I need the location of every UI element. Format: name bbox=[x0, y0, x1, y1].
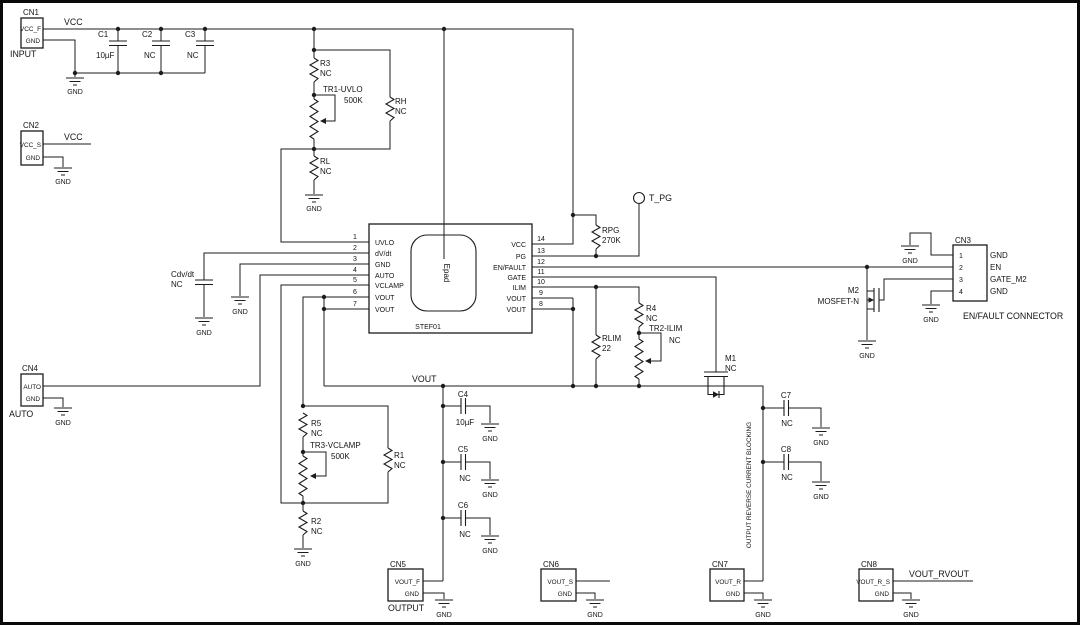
tr1-wiper bbox=[314, 95, 335, 121]
pg-wire bbox=[532, 204, 639, 257]
tr1-ref: TR1-UVLO bbox=[323, 85, 363, 94]
gnd-label: GND bbox=[196, 330, 212, 337]
cdvdt-ref: Cdv/dt bbox=[171, 270, 195, 279]
cn6-name: CN6 bbox=[543, 560, 560, 569]
trimmer-tr2 bbox=[635, 339, 643, 379]
pin7-wire bbox=[324, 297, 369, 386]
cn4-name: CN4 bbox=[22, 364, 39, 373]
resistor-r3 bbox=[310, 58, 318, 82]
ic-pin-number: 6 bbox=[353, 289, 357, 296]
mosfet-m1 bbox=[704, 372, 728, 398]
cn3-pin1-wire bbox=[910, 233, 953, 255]
gnd-label: GND bbox=[55, 420, 71, 427]
gate-wire bbox=[532, 277, 716, 372]
cn1-name: CN1 bbox=[23, 8, 40, 17]
rh-value: NC bbox=[395, 107, 407, 116]
gnd-label: GND bbox=[923, 317, 939, 324]
cdvdt-value: NC bbox=[171, 280, 183, 289]
gnd-label: GND bbox=[587, 612, 603, 619]
m1-value: NC bbox=[725, 364, 737, 373]
ic-pin-name: UVLO bbox=[375, 240, 395, 247]
tr3-ref: TR3-VCLAMP bbox=[310, 441, 361, 450]
tr1-value: 500K bbox=[344, 96, 363, 105]
c1-ref: C1 bbox=[98, 30, 109, 39]
cn7-pin2-label: GND bbox=[726, 591, 741, 598]
ic-pin-number: 9 bbox=[539, 290, 543, 297]
gnd-label: GND bbox=[482, 548, 498, 555]
ic-pin-number: 4 bbox=[353, 267, 357, 274]
cn6-pin1-label: VOUT_S bbox=[547, 579, 573, 586]
cn3-pin3-wire bbox=[879, 279, 953, 300]
r3-ref: R3 bbox=[320, 59, 331, 68]
m2-value: MOSFET-N bbox=[818, 297, 860, 306]
ic-pin-name: AUTO bbox=[375, 273, 395, 280]
c7-value: NC bbox=[781, 419, 793, 428]
gnd-label: GND bbox=[232, 309, 248, 316]
c5-ref: C5 bbox=[458, 445, 469, 454]
capacitor-c4 bbox=[461, 398, 466, 414]
cn2-pin2-label: GND bbox=[26, 155, 41, 162]
tr2-value: NC bbox=[669, 336, 681, 345]
mosfet-m2 bbox=[867, 267, 879, 340]
c1-value: 10µF bbox=[96, 51, 115, 60]
cn3-caption: EN/FAULT CONNECTOR bbox=[963, 311, 1063, 321]
pins-8-9-wires bbox=[532, 298, 573, 386]
capacitor-c7 bbox=[784, 400, 789, 416]
rpg-ref: RPG bbox=[602, 226, 619, 235]
cn3-name: CN3 bbox=[955, 236, 972, 245]
ic-pin-name: GND bbox=[375, 262, 391, 269]
rh-ref: RH bbox=[395, 97, 407, 106]
m2-arrow bbox=[869, 297, 875, 302]
wires bbox=[43, 29, 973, 599]
ic-pin-name: VCC bbox=[511, 242, 526, 249]
cn4-pin1-label: AUTO bbox=[23, 384, 41, 391]
ic-pin-name: VCLAMP bbox=[375, 283, 404, 290]
net-vcc-label: VCC bbox=[64, 17, 83, 27]
gnd-label: GND bbox=[295, 561, 311, 568]
cn5-pin2-label: GND bbox=[405, 591, 420, 598]
r5-ref: R5 bbox=[311, 419, 322, 428]
cn6-wires bbox=[576, 581, 610, 599]
labels: CN1 VCC_F GND INPUT VCC C1 10µF C2 NC C3… bbox=[9, 8, 1063, 619]
c4-ref: C4 bbox=[458, 390, 469, 399]
resistor-r4 bbox=[635, 303, 643, 327]
rl-value: NC bbox=[320, 167, 332, 176]
gnd-label: GND bbox=[67, 89, 83, 96]
tr1-wiper-arrow bbox=[320, 118, 326, 124]
resistor-rpg bbox=[592, 225, 600, 249]
net-vout-label: VOUT bbox=[412, 374, 437, 384]
m1-body-diode bbox=[713, 391, 719, 398]
ic-pin-name: ILIM bbox=[512, 285, 526, 292]
net-vcc-sense-label: VCC bbox=[64, 132, 83, 142]
capacitor-c8 bbox=[784, 454, 789, 470]
cn2-pin1-label: VCC_S bbox=[20, 142, 41, 149]
cn2-name: CN2 bbox=[23, 121, 40, 130]
cn8-pin2-label: GND bbox=[875, 591, 890, 598]
gnd-label: GND bbox=[902, 258, 918, 265]
ic-pin-number: 2 bbox=[353, 245, 357, 252]
cn3-pin-label: GATE_M2 bbox=[990, 275, 1027, 284]
tr3-value: 500K bbox=[331, 452, 350, 461]
gnd-label: GND bbox=[859, 353, 875, 360]
rpg-value: 270K bbox=[602, 236, 621, 245]
c3-ref: C3 bbox=[185, 30, 196, 39]
gnd-label: GND bbox=[813, 494, 829, 501]
ic-pin-number: 3 bbox=[353, 256, 357, 263]
r5-value: NC bbox=[311, 429, 323, 438]
ic-pin-name: GATE bbox=[507, 275, 526, 282]
m2-ref: M2 bbox=[848, 286, 860, 295]
ic-pin-number: 12 bbox=[537, 259, 545, 266]
pin6-wire bbox=[303, 297, 369, 406]
resistor-rlim bbox=[592, 335, 600, 359]
resistor-r2 bbox=[299, 511, 307, 535]
c2-ref: C2 bbox=[142, 30, 153, 39]
connector-boxes bbox=[21, 18, 987, 601]
cn1-pin2-label: GND bbox=[26, 38, 41, 45]
pin3-gnd-wire bbox=[240, 264, 369, 296]
trimmer-tr3 bbox=[299, 456, 307, 496]
cn8-name: CN8 bbox=[861, 560, 878, 569]
c6-ref: C6 bbox=[458, 501, 469, 510]
reverse-blocking-note: OUTPUT REVERSE CURRENT BLOCKING bbox=[746, 422, 753, 548]
cn1-gnd-wire bbox=[43, 40, 75, 77]
schematic-canvas: CN1 VCC_F GND INPUT VCC C1 10µF C2 NC C3… bbox=[3, 3, 1077, 622]
tr3-wiper-arrow bbox=[310, 473, 316, 479]
cn3-pin-number: 1 bbox=[959, 253, 963, 260]
capacitor-c1 bbox=[109, 41, 127, 46]
cn5-caption: OUTPUT bbox=[388, 603, 425, 613]
resistor-r1 bbox=[384, 448, 392, 472]
ic-pin-name: PG bbox=[516, 254, 526, 261]
vclamp-wire bbox=[281, 285, 369, 503]
gnd-label: GND bbox=[55, 179, 71, 186]
c2-value: NC bbox=[144, 51, 156, 60]
cn2-gnd-wire bbox=[43, 157, 63, 167]
cn1-caption: INPUT bbox=[10, 49, 37, 59]
cn4-pin2-label: GND bbox=[26, 396, 41, 403]
gnd-label: GND bbox=[482, 492, 498, 499]
c6-value: NC bbox=[459, 530, 471, 539]
cn3-pin-number: 2 bbox=[959, 265, 963, 272]
ic-pin-number: 11 bbox=[537, 269, 544, 276]
tr2-ref: TR2-ILIM bbox=[649, 324, 683, 333]
ic-pin-name: VOUT bbox=[507, 307, 527, 314]
capacitor-c5 bbox=[461, 454, 466, 470]
testpoint-t-pg bbox=[634, 193, 645, 204]
ic-part-number: STEF01 bbox=[415, 324, 441, 331]
cn3-pin-label: GND bbox=[990, 251, 1008, 260]
r4-value: NC bbox=[646, 314, 658, 323]
ic-pin-name: VOUT bbox=[375, 307, 395, 314]
resistor-r5 bbox=[299, 413, 307, 437]
gnd-label: GND bbox=[903, 612, 919, 619]
ic-pin-number: 8 bbox=[539, 301, 543, 308]
c3-value: NC bbox=[187, 51, 199, 60]
gnd-label: GND bbox=[306, 206, 322, 213]
capacitor-cdvdt bbox=[195, 280, 213, 285]
cn8-pin1-label: VOUT_R_S bbox=[856, 579, 890, 586]
c8-value: NC bbox=[781, 473, 793, 482]
ic-epad-label: Epad bbox=[442, 264, 451, 283]
ic-pin-number: 5 bbox=[353, 277, 357, 284]
cn3-pin-number: 3 bbox=[959, 277, 963, 284]
cn3-pin-label: EN bbox=[990, 263, 1001, 272]
resistor-rl bbox=[310, 156, 318, 180]
ic-pin-name: VOUT bbox=[375, 295, 395, 302]
tr2-wiper bbox=[639, 333, 661, 361]
vout-rail bbox=[324, 386, 763, 581]
c8-ref: C8 bbox=[781, 445, 792, 454]
ic-pin-name: dV/dt bbox=[375, 251, 391, 258]
c5-value: NC bbox=[459, 474, 471, 483]
cn8-wires bbox=[893, 581, 973, 599]
cn7-name: CN7 bbox=[712, 560, 729, 569]
r2-value: NC bbox=[311, 527, 323, 536]
ilim-wires bbox=[532, 287, 639, 386]
ic-pin-name: EN/FAULT bbox=[493, 265, 527, 272]
trimmer-tr1 bbox=[310, 99, 318, 139]
components bbox=[54, 41, 940, 607]
capacitor-c6 bbox=[461, 510, 466, 526]
gnd-label: GND bbox=[755, 612, 771, 619]
gnd-label: GND bbox=[436, 612, 452, 619]
ground-symbols bbox=[54, 78, 940, 607]
cn4-caption: AUTO bbox=[9, 409, 33, 419]
r1-ref: R1 bbox=[394, 451, 405, 460]
cn3-pin-label: GND bbox=[990, 287, 1008, 296]
cn5-name: CN5 bbox=[390, 560, 407, 569]
schematic-page: CN1 VCC_F GND INPUT VCC C1 10µF C2 NC C3… bbox=[0, 0, 1080, 625]
r1-value: NC bbox=[394, 461, 406, 470]
c7-ref: C7 bbox=[781, 391, 792, 400]
testpoint-label: T_PG bbox=[649, 193, 672, 203]
ic-pin-number: 14 bbox=[537, 236, 545, 243]
cn4-gnd-wire bbox=[43, 398, 63, 407]
capacitor-c3 bbox=[196, 41, 214, 46]
r2-ref: R2 bbox=[311, 517, 322, 526]
r3-value: NC bbox=[320, 69, 332, 78]
cn3-pin-number: 4 bbox=[959, 289, 963, 296]
m1-ref: M1 bbox=[725, 354, 737, 363]
ic-pin-number: 7 bbox=[353, 301, 357, 308]
rlim-value: 22 bbox=[602, 344, 611, 353]
rlim-ref: RLIM bbox=[602, 334, 621, 343]
tr2-wiper-arrow bbox=[645, 358, 651, 364]
tr3-wiper bbox=[303, 452, 326, 476]
cn6-pin2-label: GND bbox=[558, 591, 573, 598]
cn7-wires bbox=[744, 581, 763, 599]
cn5-wires bbox=[423, 581, 444, 599]
rl-ref: RL bbox=[320, 157, 331, 166]
c4-value: 10µF bbox=[456, 418, 475, 427]
cn7-pin1-label: VOUT_R bbox=[715, 579, 741, 586]
gnd-label: GND bbox=[813, 440, 829, 447]
ic-pin-name: VOUT bbox=[507, 296, 527, 303]
cn1-pin1-label: VCC_F bbox=[20, 26, 41, 33]
cn5-pin1-label: VOUT_F bbox=[395, 579, 420, 586]
cn3-pin4-wire bbox=[931, 291, 953, 304]
net-vout-rvout-label: VOUT_RVOUT bbox=[909, 569, 970, 579]
ic-pin-number: 10 bbox=[537, 279, 545, 286]
ic-pin-number: 13 bbox=[537, 248, 545, 255]
resistor-rh bbox=[386, 97, 394, 121]
capacitor-c2 bbox=[152, 41, 170, 46]
gnd-label: GND bbox=[482, 436, 498, 443]
ic-pin-number: 1 bbox=[353, 234, 357, 241]
r4-ref: R4 bbox=[646, 304, 657, 313]
rpg-wire bbox=[573, 215, 596, 256]
